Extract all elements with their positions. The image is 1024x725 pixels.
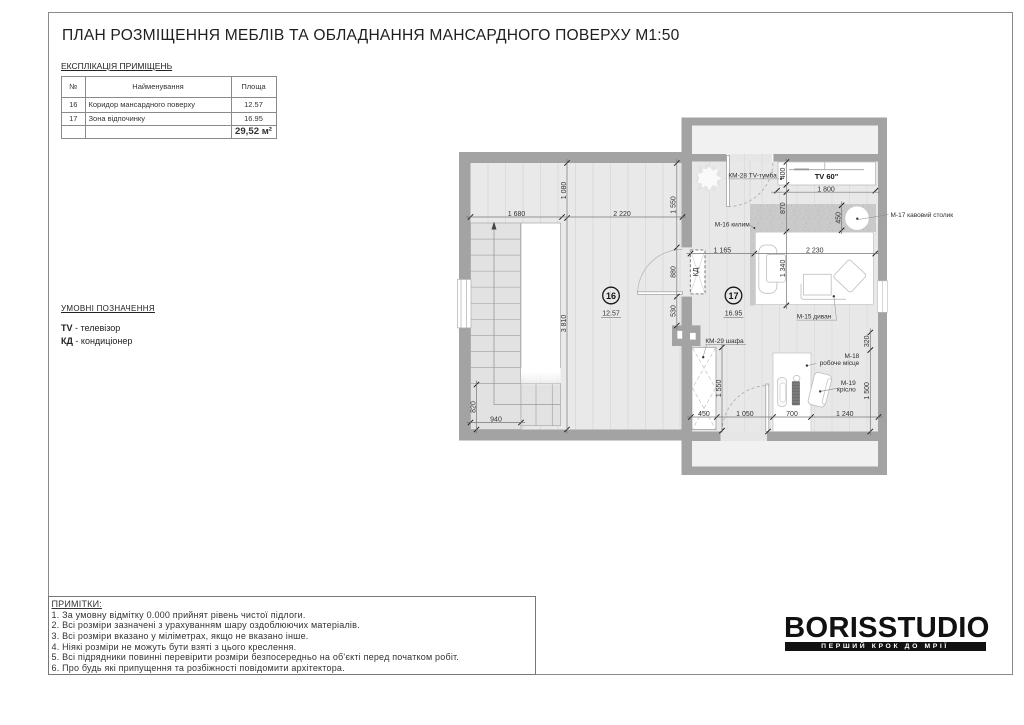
svg-text:М-15 диван: М-15 диван [797,313,832,320]
svg-text:КМ-28 TV-тумба: КМ-28 TV-тумба [728,171,777,179]
svg-text:880: 880 [671,266,678,278]
svg-text:2 230: 2 230 [806,248,824,255]
svg-text:М-17 кавовий столик: М-17 кавовий столик [891,211,954,219]
svg-text:1 080: 1 080 [561,182,568,200]
svg-text:12.57: 12.57 [602,311,620,318]
svg-text:940: 940 [490,417,502,424]
svg-text:530: 530 [671,305,678,317]
svg-text:1 680: 1 680 [508,211,526,218]
svg-text:450: 450 [698,411,710,418]
svg-text:2 220: 2 220 [613,211,631,218]
svg-text:400: 400 [780,167,787,179]
svg-text:870: 870 [780,202,787,214]
svg-text:16.95: 16.95 [725,311,743,318]
svg-text:КД: КД [693,267,700,276]
svg-text:1 240: 1 240 [836,411,854,418]
svg-text:1 800: 1 800 [817,186,835,193]
svg-text:1 550: 1 550 [716,380,723,398]
svg-text:1 340: 1 340 [780,260,787,278]
svg-text:КМ-29 шафа: КМ-29 шафа [705,338,744,345]
svg-text:1 500: 1 500 [864,382,871,400]
svg-text:1 165: 1 165 [714,248,732,255]
svg-text:TV 60": TV 60" [815,172,839,181]
svg-text:1 050: 1 050 [736,411,754,418]
svg-text:1 550: 1 550 [671,196,678,214]
svg-text:крісло: крісло [837,386,856,394]
svg-text:700: 700 [786,411,798,418]
svg-text:17: 17 [728,291,738,301]
svg-text:М-16 килим: М-16 килим [715,221,751,228]
svg-text:16: 16 [606,291,616,301]
svg-text:робоче місце: робоче місце [820,359,860,367]
svg-text:3 810: 3 810 [561,315,568,333]
svg-text:820: 820 [470,401,477,413]
svg-text:320: 320 [864,335,871,347]
svg-text:450: 450 [835,212,842,224]
